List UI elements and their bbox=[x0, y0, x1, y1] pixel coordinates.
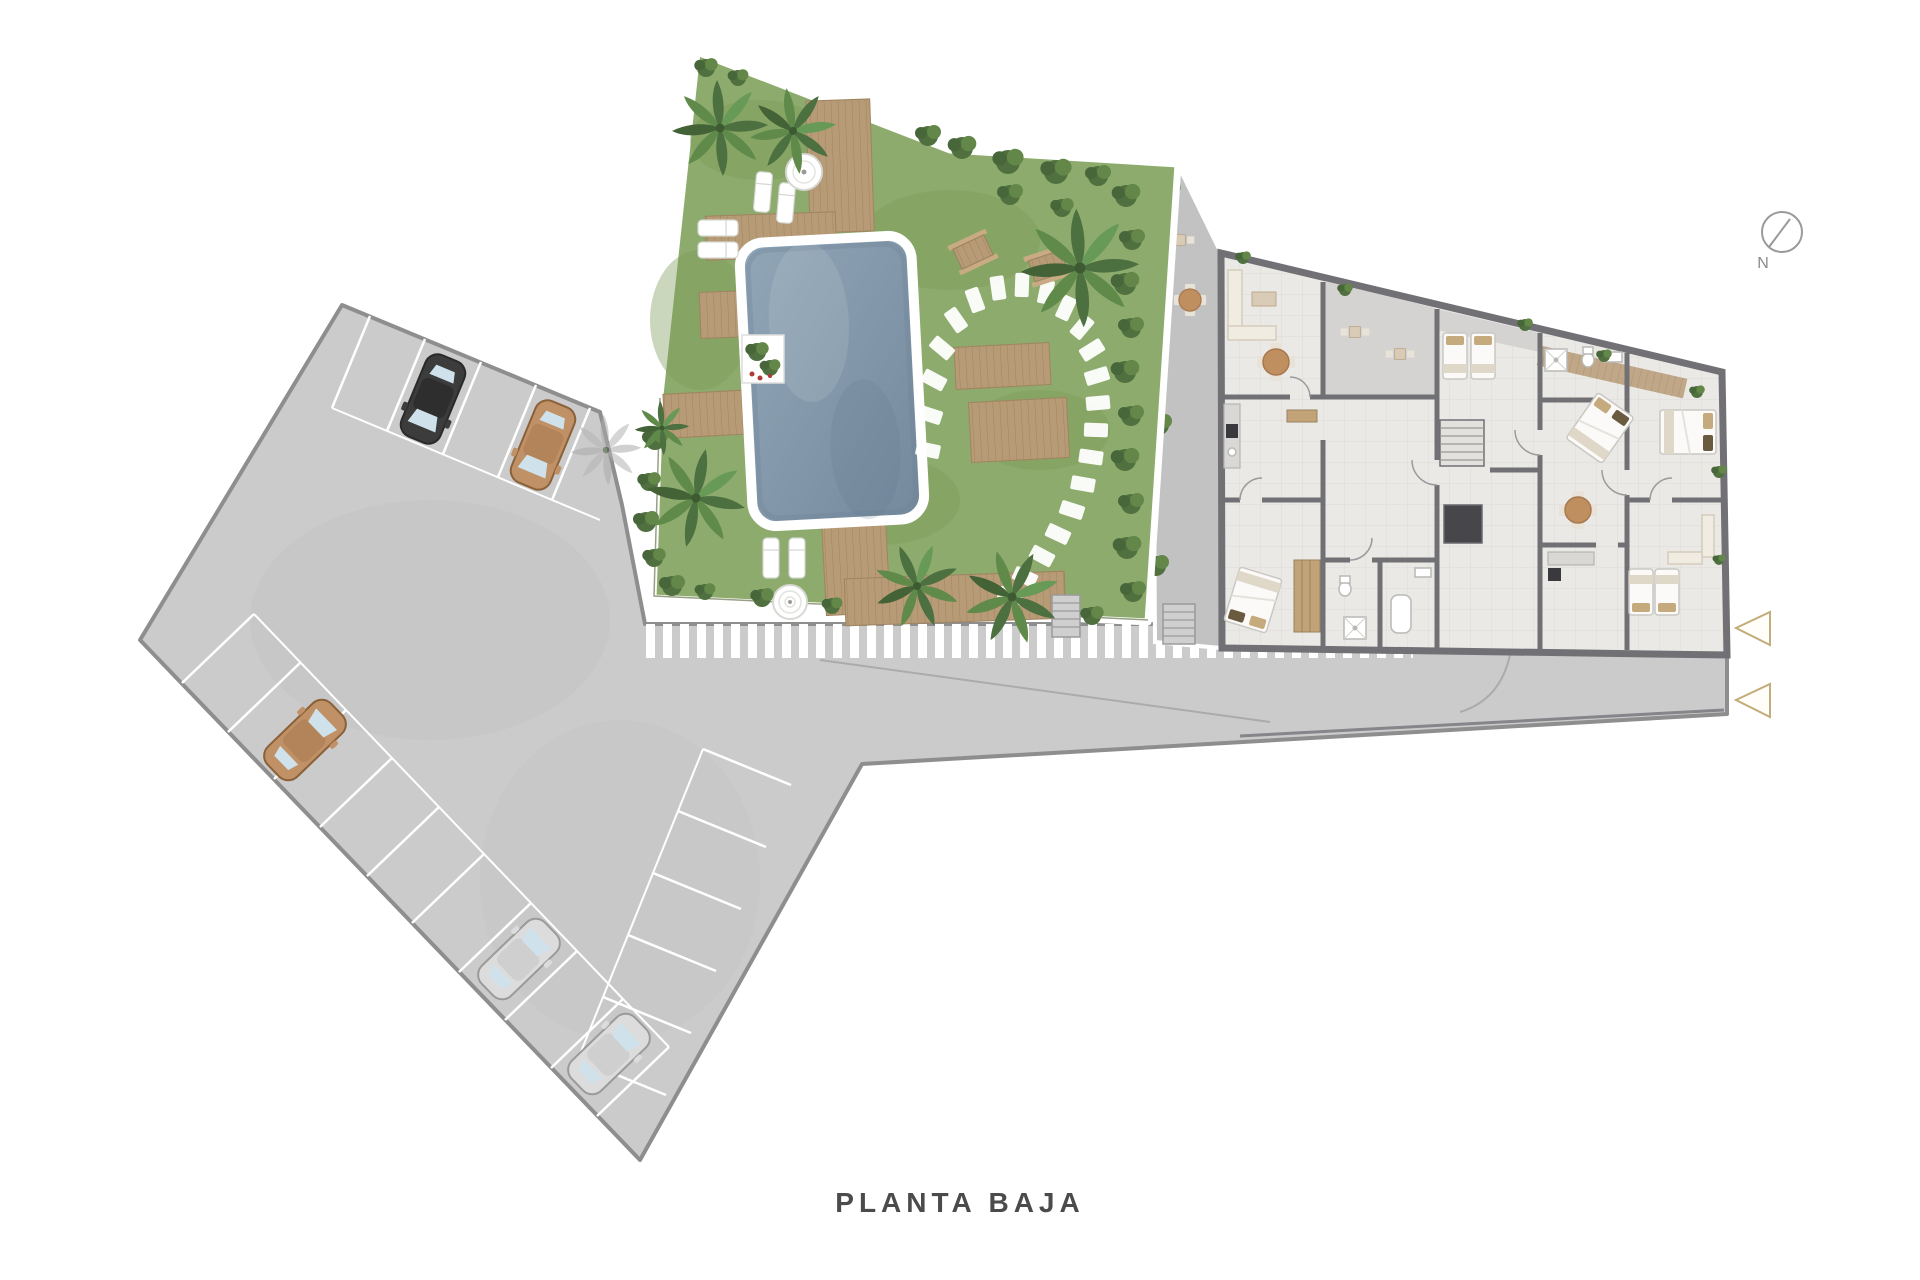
wardrobe bbox=[1294, 560, 1320, 632]
stove bbox=[1548, 568, 1561, 581]
garden-stairs bbox=[1052, 595, 1080, 637]
toilet bbox=[1582, 347, 1594, 367]
sofa bbox=[1668, 552, 1702, 564]
page-title: PLANTA BAJA bbox=[835, 1187, 1084, 1218]
entrance-arrow-icon bbox=[1736, 612, 1770, 645]
fountain bbox=[773, 585, 807, 619]
sofa bbox=[1702, 515, 1714, 557]
stairwell bbox=[1440, 420, 1484, 466]
shower bbox=[1545, 349, 1567, 371]
site-plan: N PLANTA BAJA bbox=[0, 0, 1920, 1280]
sofa bbox=[1228, 270, 1242, 332]
bed bbox=[1629, 569, 1653, 615]
bed bbox=[1660, 410, 1716, 454]
elevator bbox=[1444, 505, 1482, 543]
toilet bbox=[1339, 576, 1351, 596]
bathtub bbox=[1391, 595, 1411, 633]
sofa bbox=[1228, 326, 1276, 340]
kitchen-counter bbox=[1548, 552, 1594, 565]
parasol bbox=[786, 154, 822, 190]
deck-right-a bbox=[954, 343, 1051, 390]
bed bbox=[1443, 333, 1467, 379]
coffee-table bbox=[1252, 292, 1276, 306]
shower bbox=[1344, 617, 1366, 639]
pavement-shade bbox=[480, 720, 760, 1040]
entrance-arrow-icon bbox=[1736, 684, 1770, 717]
entrance-arrows bbox=[1736, 612, 1770, 717]
deck-right-b bbox=[968, 397, 1069, 462]
garden-area bbox=[633, 52, 1178, 663]
pavement-shade bbox=[250, 500, 610, 740]
patio-stairs bbox=[1163, 604, 1195, 644]
bathroom-sink bbox=[1415, 568, 1431, 577]
compass-needle-icon bbox=[1769, 219, 1790, 247]
compass-circle-icon bbox=[1762, 212, 1802, 252]
compass: N bbox=[1757, 212, 1802, 272]
stove bbox=[1226, 424, 1238, 438]
compass-label: N bbox=[1757, 255, 1769, 272]
bench bbox=[1287, 410, 1317, 422]
sink bbox=[1228, 448, 1236, 456]
bed bbox=[1471, 333, 1495, 379]
apartment-building bbox=[1221, 251, 1727, 655]
bed bbox=[1655, 569, 1679, 615]
planter-box bbox=[742, 335, 784, 383]
